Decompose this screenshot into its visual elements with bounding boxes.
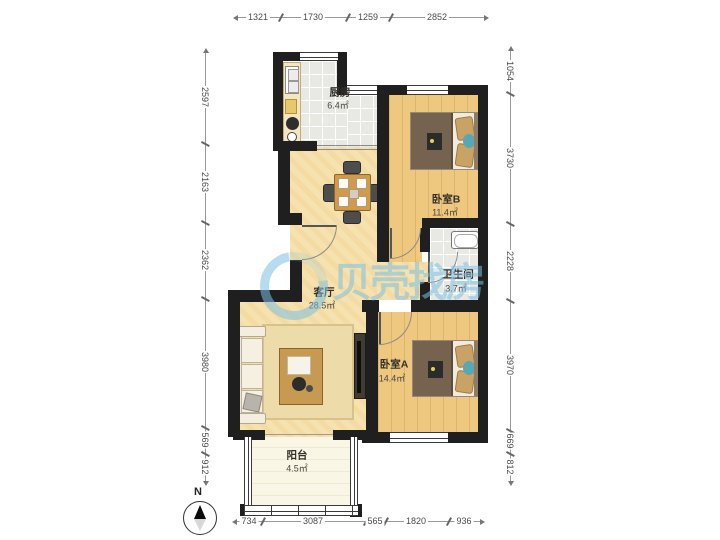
bedroom-b-area: 11.4㎡ [432,206,458,219]
dim-label-bottom-1: 3087 [301,516,325,526]
dim-arrow [232,519,237,525]
wall-living-left-below-door [290,260,302,292]
bed-accent-box [428,361,443,378]
compass-needle-north [194,505,206,519]
dim-arrow [508,481,514,486]
dining-chair-bottom [343,211,361,224]
kitchen-threshold [317,145,377,150]
dim-label-right-0: 1054 [505,60,515,82]
sofa-pillow [242,392,262,412]
wall-sofa-side [228,302,240,437]
bedroom-b-name: 卧室B [432,192,461,207]
sofa-cushion [241,364,263,389]
dim-arrow [233,15,238,21]
dining-chair-top [343,161,361,174]
wall-kitchen-bottom [273,141,317,151]
plate [338,178,349,189]
balcony-name: 阳台 [287,448,308,463]
wall-bedroom-a-top-right [411,300,488,312]
compass: N [180,488,220,538]
plate [356,178,367,189]
wall-bedroom-b-left [377,85,389,262]
dim-label-left-1: 2163 [200,171,210,193]
accent-dot [430,139,434,143]
dim-label-top-2: 1259 [356,12,380,22]
tv-cabinet [354,333,366,399]
dim-arrow [203,481,209,486]
living-name: 客厅 [314,285,335,300]
dim-line-bottom [236,521,481,522]
floorplan-canvas: 厨房 6.4㎡ 卧室B 11.4㎡ 卫生间 3.7㎡ 客厅 28.5㎡ 卧室A … [0,0,720,540]
dim-label-bottom-3: 1820 [404,516,428,526]
bathroom-area: 3.7㎡ [445,282,467,295]
wall-kitchen-left [273,52,283,151]
dim-label-bottom-4: 936 [454,516,473,526]
kitchen-sink [285,66,299,94]
dim-label-top-3: 2852 [425,12,449,22]
coffee-table [279,348,323,405]
dim-label-top-0: 1321 [246,12,270,22]
sink-basin-1 [288,69,299,81]
dim-label-left-3: 3980 [200,351,210,373]
wall-right-exterior [478,85,488,443]
kitchen-area: 6.4㎡ [327,99,349,112]
wall-living-left-upper [278,151,290,213]
bed-accent-box [427,133,442,150]
living-area: 28.5㎡ [309,299,336,312]
kitchen-name: 厨房 [330,85,351,100]
compass-n-label: N [194,486,202,498]
wall-bedroom-a-left [366,312,378,443]
cup [306,385,313,392]
dim-label-right-3: 3970 [505,354,515,376]
bathtub-inner [454,234,478,248]
kitchen-window [300,52,338,61]
dim-label-right-5: 812 [505,458,515,475]
dim-label-right-1: 3730 [505,147,515,169]
sofa-cushion [241,338,263,363]
plate [338,196,349,207]
balcony-window-left [244,437,252,507]
kitchen-cutting-board [285,99,297,114]
bedroom-a-window [390,432,448,443]
accent-dot [431,367,435,371]
kitchen-floor-right [347,95,377,147]
dim-arrow [508,46,514,51]
bedroom-a-area: 14.4㎡ [379,372,406,385]
dim-label-right-2: 2228 [505,250,515,272]
wall-living-notch [278,213,302,225]
tea-tray [287,356,311,375]
dim-label-left-2: 2362 [200,249,210,271]
dim-arrow [480,519,485,525]
bedroom-b-bed [410,112,481,170]
bathtub [451,231,479,249]
bedroom-b-window [407,85,448,95]
bathroom-name: 卫生间 [442,267,474,282]
dim-label-left-0: 2597 [200,86,210,108]
balcony-threshold [265,434,333,435]
wall-bedroom-a-top-left [362,300,379,312]
tv-screen [357,341,361,393]
table-centerpiece [349,189,359,199]
wall-bathroom-left-upper [420,228,430,252]
dim-label-top-1: 1730 [301,12,325,22]
balcony-window-bottom [244,505,358,516]
balcony-window-right [350,437,358,507]
wall-step-left [228,290,302,302]
dim-arrow [484,15,489,21]
step-window [347,85,377,95]
dim-label-left-5: 912 [200,458,210,475]
compass-needle-south [194,519,206,531]
dim-label-left-4: 569 [200,431,210,448]
kettle [292,377,306,391]
bedroom-a-name: 卧室A [380,357,409,372]
bedroom-a-bed [412,340,481,397]
balcony-area: 4.5㎡ [286,462,308,475]
dim-arrow [203,48,209,53]
dim-label-right-4: 669 [505,432,515,449]
sink-basin-2 [288,81,299,93]
dining-table [334,174,371,211]
dim-label-bottom-2: 565 [365,516,384,526]
dim-label-bottom-0: 734 [239,516,258,526]
kitchen-cooktop [286,117,299,130]
